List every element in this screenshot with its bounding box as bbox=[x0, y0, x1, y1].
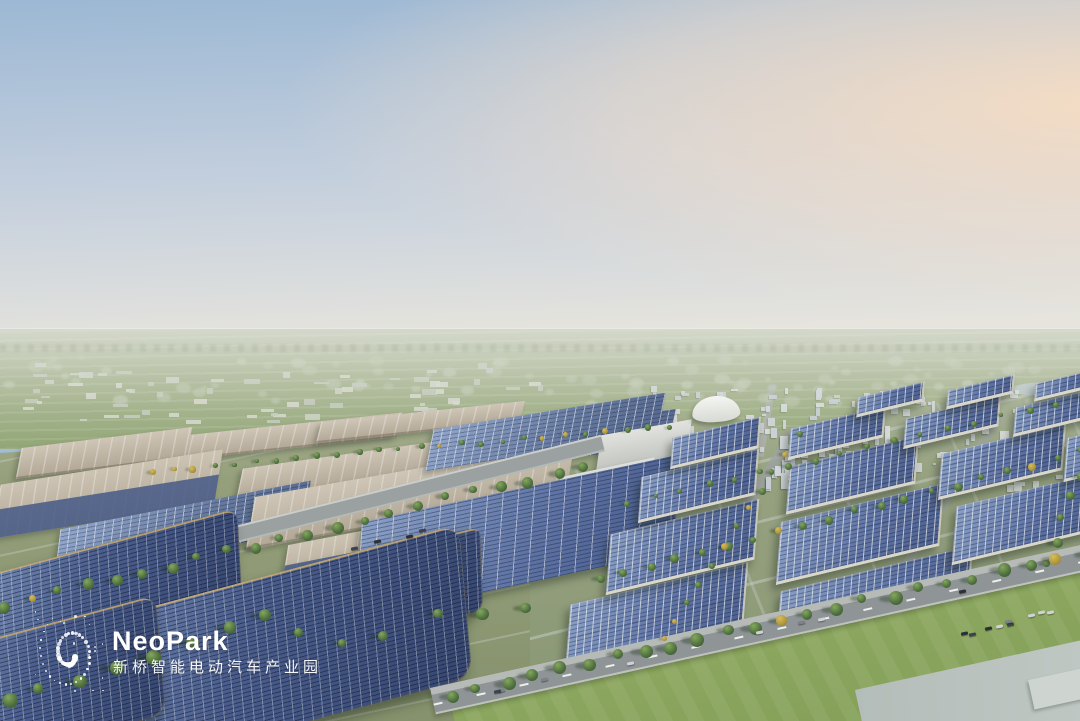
brand-mark-dot bbox=[39, 647, 40, 648]
street-tree bbox=[172, 467, 177, 472]
far-building bbox=[37, 401, 42, 403]
brand-mark-dot bbox=[65, 683, 68, 686]
street-tree bbox=[664, 642, 677, 655]
far-building bbox=[448, 398, 460, 404]
street-tree bbox=[314, 452, 320, 458]
brand-mark-dot bbox=[86, 668, 89, 671]
street-tree bbox=[522, 477, 533, 488]
far-tree-cluster bbox=[461, 386, 475, 395]
city-building bbox=[810, 416, 817, 420]
city-building bbox=[766, 406, 770, 411]
brand-mark-dot bbox=[56, 649, 60, 653]
brand-mark-dot bbox=[73, 642, 76, 645]
far-tree-cluster bbox=[728, 380, 736, 385]
city-building bbox=[675, 396, 681, 400]
brand-mark-dot bbox=[35, 611, 36, 612]
brand-mark-dot bbox=[94, 646, 96, 648]
street-tree bbox=[1055, 455, 1061, 461]
far-building bbox=[186, 420, 200, 424]
sunrise-glow bbox=[0, 0, 1080, 345]
street-tree bbox=[33, 683, 43, 693]
city-building bbox=[933, 463, 936, 465]
city-building bbox=[682, 393, 689, 396]
street-tree bbox=[670, 554, 679, 563]
far-building bbox=[1056, 475, 1062, 479]
street-tree bbox=[699, 549, 706, 556]
far-building bbox=[474, 379, 480, 385]
far-tree-cluster bbox=[373, 368, 383, 375]
far-building bbox=[104, 415, 119, 418]
city-building bbox=[762, 414, 766, 416]
brand-mark-dot bbox=[45, 670, 47, 672]
city-building bbox=[783, 420, 786, 429]
street-tree bbox=[332, 522, 344, 534]
street-tree bbox=[1053, 402, 1059, 408]
street-tree bbox=[1004, 467, 1010, 473]
far-tree-cluster bbox=[949, 360, 962, 369]
city-building bbox=[1015, 390, 1019, 394]
street-tree bbox=[1057, 514, 1064, 521]
street-tree bbox=[583, 659, 595, 671]
street-tree bbox=[540, 436, 544, 440]
far-tree-cluster bbox=[934, 383, 944, 390]
brand-mark-dot bbox=[84, 640, 88, 644]
far-building bbox=[98, 373, 107, 376]
street-tree bbox=[732, 477, 738, 483]
street-tree bbox=[677, 489, 682, 494]
street-tree bbox=[857, 594, 866, 603]
brand-mark-dot bbox=[102, 643, 104, 645]
city-building bbox=[852, 401, 855, 407]
city-building bbox=[696, 392, 700, 398]
far-building bbox=[410, 394, 421, 398]
far-tree-cluster bbox=[411, 386, 421, 393]
street-tree bbox=[1028, 463, 1036, 471]
far-tree-cluster bbox=[590, 389, 603, 397]
far-building bbox=[287, 402, 299, 407]
city-building bbox=[768, 418, 775, 426]
far-tree-cluster bbox=[1008, 362, 1024, 373]
brand-subtitle: 新桥智能电动汽车产业园 bbox=[113, 656, 322, 677]
far-building bbox=[430, 381, 441, 387]
city-building bbox=[903, 409, 909, 416]
far-building bbox=[23, 407, 34, 410]
far-tree-cluster bbox=[3, 381, 15, 389]
street-tree bbox=[189, 466, 195, 472]
brand-mark-dot bbox=[47, 624, 48, 625]
far-building bbox=[207, 388, 213, 394]
far-building bbox=[247, 415, 257, 417]
street-tree bbox=[274, 458, 279, 463]
far-building bbox=[436, 389, 444, 394]
street-tree bbox=[954, 483, 962, 491]
brand-mark-dot bbox=[40, 639, 42, 641]
far-building bbox=[124, 415, 140, 418]
brand-name: NeoPark bbox=[112, 626, 229, 657]
far-tree-cluster bbox=[924, 372, 933, 378]
street-tree bbox=[526, 669, 538, 681]
brand-mark-dot bbox=[88, 662, 91, 665]
far-building bbox=[271, 413, 278, 416]
brand-mark-dot bbox=[59, 639, 63, 643]
city-building bbox=[916, 463, 922, 471]
far-tree-cluster bbox=[332, 361, 340, 366]
street-tree bbox=[785, 463, 792, 470]
street-tree bbox=[137, 569, 147, 579]
street-tree bbox=[476, 608, 488, 620]
brand-mark-dot bbox=[60, 621, 61, 622]
far-building bbox=[148, 382, 154, 386]
street-tree bbox=[734, 523, 739, 528]
street-tree bbox=[441, 492, 449, 500]
far-tree-cluster bbox=[193, 388, 206, 397]
far-tree-cluster bbox=[765, 377, 772, 381]
brand-mark-dot bbox=[74, 690, 76, 692]
city-building bbox=[971, 434, 975, 441]
far-building bbox=[314, 382, 329, 384]
far-building bbox=[68, 383, 83, 386]
far-building bbox=[70, 373, 84, 375]
street-tree bbox=[662, 636, 667, 641]
street-tree bbox=[150, 469, 156, 475]
street-tree bbox=[967, 575, 977, 585]
city-building bbox=[829, 400, 838, 404]
street-tree bbox=[597, 575, 605, 583]
street-tree bbox=[625, 427, 631, 433]
far-tree-cluster bbox=[211, 383, 219, 388]
far-tree-cluster bbox=[443, 368, 455, 376]
street-tree bbox=[750, 537, 756, 543]
horizon-treeline bbox=[0, 344, 1080, 352]
street-tree bbox=[851, 506, 857, 512]
street-tree bbox=[775, 527, 782, 534]
far-tree-cluster bbox=[718, 355, 733, 365]
far-tree-cluster bbox=[383, 383, 393, 390]
city-building bbox=[769, 395, 777, 399]
city-building bbox=[785, 388, 788, 394]
far-tree-cluster bbox=[258, 391, 266, 397]
street-tree bbox=[376, 447, 381, 452]
far-tree-cluster bbox=[566, 375, 577, 383]
apartment-tower bbox=[780, 436, 788, 449]
far-building bbox=[244, 379, 259, 385]
city-building bbox=[923, 402, 926, 405]
street-tree bbox=[929, 488, 935, 494]
city-building bbox=[760, 447, 764, 451]
far-building bbox=[335, 388, 343, 393]
far-building bbox=[352, 383, 368, 387]
far-tree-cluster bbox=[685, 365, 698, 374]
street-tree bbox=[667, 425, 672, 430]
far-building bbox=[80, 419, 87, 422]
street-tree bbox=[251, 543, 261, 553]
apartment-tower bbox=[781, 473, 788, 489]
street-tree bbox=[707, 480, 714, 487]
far-building bbox=[486, 368, 493, 373]
brand-mark-dot bbox=[56, 646, 60, 650]
far-building bbox=[422, 389, 436, 394]
far-building bbox=[116, 383, 122, 388]
brand-mark-dot bbox=[40, 655, 42, 657]
city-building bbox=[781, 404, 787, 412]
street-tree bbox=[222, 545, 230, 553]
far-building bbox=[330, 403, 342, 408]
far-tree-cluster bbox=[793, 384, 803, 391]
city-building bbox=[651, 386, 657, 392]
street-tree bbox=[437, 444, 441, 448]
far-tree-cluster bbox=[369, 356, 384, 366]
far-tree-cluster bbox=[426, 372, 432, 376]
far-building bbox=[390, 378, 400, 380]
street-tree bbox=[583, 432, 588, 437]
city-building bbox=[834, 395, 840, 397]
street-tree bbox=[813, 458, 820, 465]
brand-mark-dot bbox=[88, 654, 90, 656]
far-building bbox=[35, 363, 46, 366]
far-building bbox=[538, 385, 544, 391]
street-tree bbox=[654, 494, 658, 498]
street-tree bbox=[384, 509, 393, 518]
street-tree bbox=[53, 586, 61, 594]
street-tree bbox=[83, 578, 94, 589]
street-tree bbox=[645, 424, 651, 430]
far-building bbox=[305, 414, 320, 420]
far-building bbox=[113, 404, 128, 408]
brand-mark-dot bbox=[42, 663, 44, 665]
street-tree bbox=[613, 649, 623, 659]
far-building bbox=[33, 389, 40, 394]
street-tree bbox=[192, 553, 200, 561]
far-tree-cluster bbox=[829, 380, 835, 384]
far-building bbox=[116, 371, 132, 374]
street-tree bbox=[998, 563, 1011, 576]
apartment-tower bbox=[766, 479, 771, 489]
street-tree bbox=[378, 631, 388, 641]
far-building bbox=[129, 389, 135, 393]
street-tree bbox=[357, 449, 363, 455]
far-building bbox=[414, 377, 429, 382]
far-building bbox=[506, 387, 520, 391]
street-tree bbox=[555, 468, 565, 478]
city-building bbox=[731, 389, 738, 391]
brand-mark-dot bbox=[57, 642, 61, 646]
brand-mark-dot bbox=[74, 615, 77, 618]
street-tree bbox=[619, 569, 627, 577]
street-tree bbox=[918, 432, 923, 437]
street-tree bbox=[447, 691, 459, 703]
street-tree bbox=[459, 440, 464, 445]
far-tree-cluster bbox=[621, 374, 630, 380]
brand-mark-dot bbox=[63, 622, 64, 623]
brand-mark-dot bbox=[37, 619, 38, 620]
far-tree-cluster bbox=[61, 373, 70, 379]
far-building bbox=[33, 374, 47, 378]
street-tree bbox=[830, 603, 843, 616]
far-building bbox=[261, 409, 273, 411]
street-tree bbox=[695, 582, 701, 588]
street-tree bbox=[469, 486, 477, 494]
street-tree bbox=[746, 505, 751, 510]
street-tree bbox=[478, 442, 484, 448]
street-tree bbox=[0, 602, 10, 613]
far-building bbox=[304, 399, 315, 405]
city-building bbox=[932, 401, 935, 412]
street-tree bbox=[1026, 560, 1037, 571]
street-tree bbox=[624, 501, 630, 507]
brand-mark-dot bbox=[88, 656, 91, 659]
street-tree bbox=[334, 452, 340, 458]
city-building bbox=[966, 439, 969, 445]
street-tree bbox=[3, 693, 18, 708]
street-tree bbox=[553, 661, 566, 674]
far-building bbox=[211, 379, 224, 383]
street-tree bbox=[797, 431, 803, 437]
far-building bbox=[45, 380, 54, 384]
street-tree bbox=[802, 609, 812, 619]
far-building bbox=[340, 375, 350, 378]
apartment-tower bbox=[771, 428, 777, 438]
street-tree bbox=[913, 582, 923, 592]
far-building bbox=[420, 403, 425, 406]
street-tree bbox=[168, 563, 179, 574]
far-building bbox=[41, 396, 50, 399]
brand-mark-dot bbox=[89, 624, 90, 625]
city-building bbox=[816, 390, 821, 400]
street-tree bbox=[900, 495, 908, 503]
far-tree-cluster bbox=[525, 373, 533, 379]
far-building bbox=[342, 387, 353, 392]
far-building bbox=[267, 420, 280, 424]
city-building bbox=[816, 403, 824, 407]
far-building bbox=[142, 410, 149, 415]
far-building bbox=[86, 393, 97, 399]
street-tree bbox=[433, 609, 443, 619]
far-building bbox=[283, 372, 290, 378]
far-building bbox=[427, 370, 437, 373]
far-building bbox=[194, 399, 207, 404]
street-tree bbox=[1027, 407, 1034, 414]
far-tree-cluster bbox=[237, 358, 246, 364]
far-building bbox=[169, 413, 179, 417]
street-tree bbox=[684, 600, 690, 606]
far-building bbox=[157, 392, 162, 397]
street-tree bbox=[648, 563, 656, 571]
far-building bbox=[166, 377, 179, 383]
aerial-render: NeoPark 新桥智能电动汽车产业园 bbox=[0, 0, 1080, 721]
street-tree bbox=[294, 628, 303, 637]
